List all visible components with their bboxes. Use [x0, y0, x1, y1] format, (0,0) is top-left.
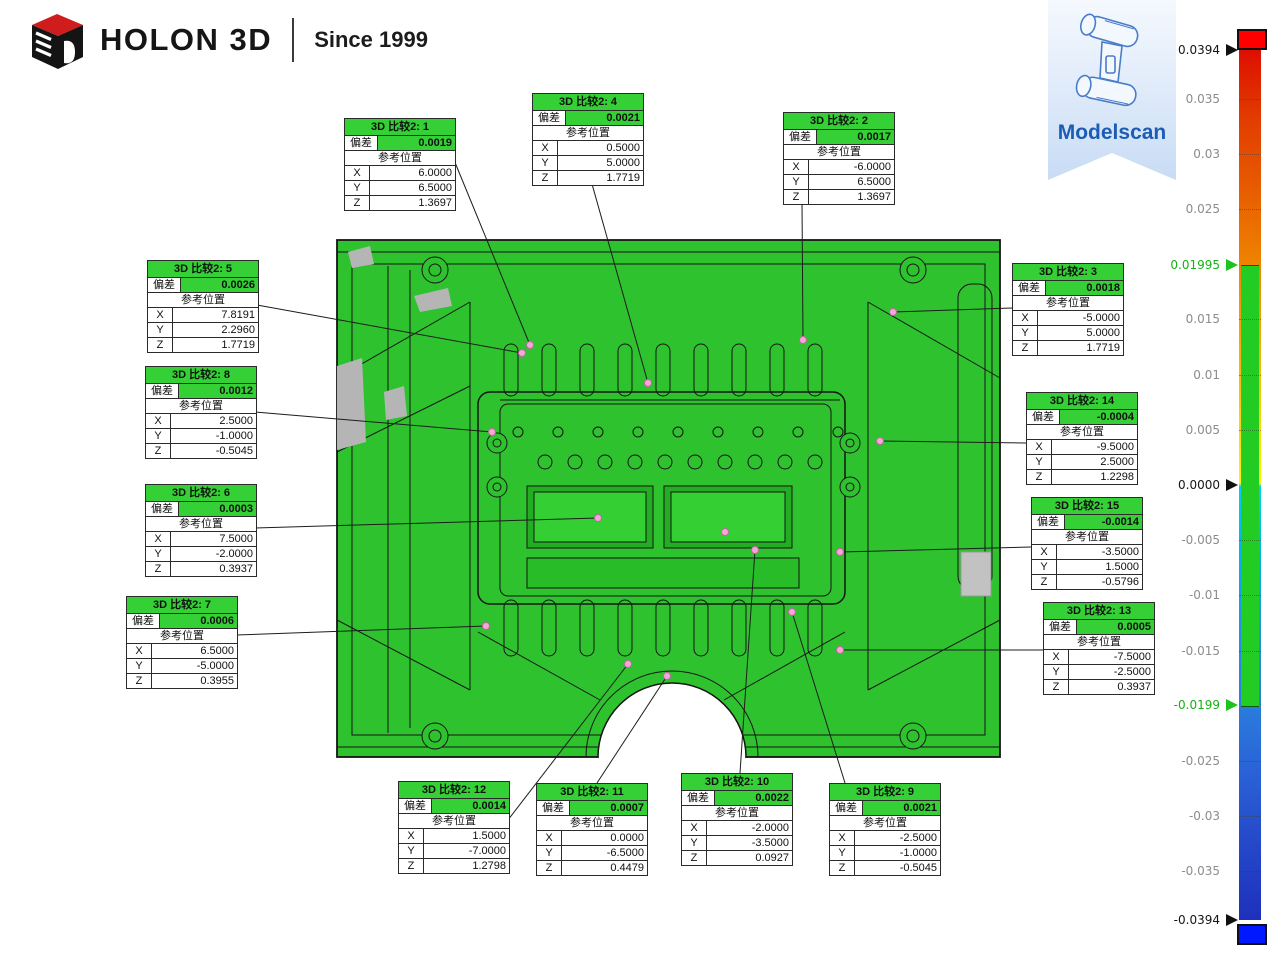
x-label: X — [682, 821, 707, 835]
x-label: X — [1013, 311, 1038, 325]
y-label: Y — [127, 659, 152, 673]
x-value: -7.5000 — [1069, 650, 1154, 664]
annotation-title: 3D 比较2: 15 — [1032, 498, 1142, 515]
deviation-value: 0.0021 — [566, 111, 643, 125]
y-value: 6.5000 — [370, 181, 455, 195]
z-label: Z — [1013, 341, 1038, 355]
z-value: 0.3937 — [1069, 680, 1154, 694]
annotation-card-9[interactable]: 3D 比较2: 9 偏差 0.0021 参考位置 X -2.5000 Y -1.… — [829, 783, 941, 876]
z-value: 1.7719 — [1038, 341, 1123, 355]
z-label: Z — [533, 171, 558, 185]
z-value: 1.3697 — [809, 190, 894, 204]
annotation-card-10[interactable]: 3D 比较2: 10 偏差 0.0022 参考位置 X -2.0000 Y -3… — [681, 773, 793, 866]
reference-position-label: 参考位置 — [146, 517, 256, 532]
y-label: Y — [148, 323, 173, 337]
z-label: Z — [1027, 470, 1052, 484]
annotation-title: 3D 比较2: 7 — [127, 597, 237, 614]
reference-position-label: 参考位置 — [146, 399, 256, 414]
x-label: X — [533, 141, 558, 155]
deviation-label: 偏差 — [146, 502, 179, 516]
y-value: 2.2960 — [173, 323, 258, 337]
z-value: 0.0927 — [707, 851, 792, 865]
z-value: 0.3955 — [152, 674, 237, 688]
x-value: 2.5000 — [171, 414, 256, 428]
deviation-label: 偏差 — [1013, 281, 1046, 295]
y-label: Y — [345, 181, 370, 195]
y-label: Y — [682, 836, 707, 850]
z-value: 1.7719 — [173, 338, 258, 352]
y-label: Y — [399, 844, 424, 858]
x-value: -6.0000 — [809, 160, 894, 174]
x-label: X — [127, 644, 152, 658]
reference-position-label: 参考位置 — [784, 145, 894, 160]
z-label: Z — [1044, 680, 1069, 694]
unscanned-patch — [384, 386, 407, 420]
z-label: Z — [1032, 575, 1057, 589]
z-value: -0.5045 — [171, 444, 256, 458]
deviation-value: 0.0017 — [817, 130, 894, 144]
since-text: Since 1999 — [314, 27, 428, 53]
z-label: Z — [146, 444, 171, 458]
x-value: -9.5000 — [1052, 440, 1137, 454]
reference-position-label: 参考位置 — [148, 293, 258, 308]
x-label: X — [146, 414, 171, 428]
annotation-title: 3D 比较2: 14 — [1027, 393, 1137, 410]
y-value: 2.5000 — [1052, 455, 1137, 469]
deviation-label: 偏差 — [146, 384, 179, 398]
deviation-value: 0.0018 — [1046, 281, 1123, 295]
deviation-label: 偏差 — [127, 614, 160, 628]
x-label: X — [148, 308, 173, 322]
annotation-card-7[interactable]: 3D 比较2: 7 偏差 0.0006 参考位置 X 6.5000 Y -5.0… — [126, 596, 238, 689]
annotation-card-5[interactable]: 3D 比较2: 5 偏差 0.0026 参考位置 X 7.8191 Y 2.29… — [147, 260, 259, 353]
deviation-value: -0.0014 — [1065, 515, 1142, 529]
z-label: Z — [345, 196, 370, 210]
deviation-value: 0.0014 — [432, 799, 509, 813]
y-value: 1.5000 — [1057, 560, 1142, 574]
annotation-title: 3D 比较2: 13 — [1044, 603, 1154, 620]
reference-position-label: 参考位置 — [345, 151, 455, 166]
reference-position-label: 参考位置 — [682, 806, 792, 821]
reference-position-label: 参考位置 — [127, 629, 237, 644]
y-label: Y — [784, 175, 809, 189]
y-label: Y — [533, 156, 558, 170]
annotation-card-14[interactable]: 3D 比较2: 14 偏差 -0.0004 参考位置 X -9.5000 Y 2… — [1026, 392, 1138, 485]
annotation-title: 3D 比较2: 1 — [345, 119, 455, 136]
deviation-value: 0.0019 — [378, 136, 455, 150]
unscanned-patch — [961, 552, 991, 596]
x-value: 7.5000 — [171, 532, 256, 546]
z-label: Z — [682, 851, 707, 865]
x-value: -2.0000 — [707, 821, 792, 835]
y-value: 5.0000 — [558, 156, 643, 170]
z-label: Z — [537, 861, 562, 875]
z-value: 1.7719 — [558, 171, 643, 185]
x-label: X — [830, 831, 855, 845]
annotation-title: 3D 比较2: 2 — [784, 113, 894, 130]
scanned-mold-plate — [337, 240, 1000, 761]
deviation-value: 0.0006 — [160, 614, 237, 628]
deviation-value: 0.0012 — [179, 384, 256, 398]
x-label: X — [399, 829, 424, 843]
annotation-title: 3D 比较2: 4 — [533, 94, 643, 111]
annotation-title: 3D 比较2: 6 — [146, 485, 256, 502]
y-value: -1.0000 — [171, 429, 256, 443]
y-value: -7.0000 — [424, 844, 509, 858]
z-label: Z — [830, 861, 855, 875]
annotation-card-15[interactable]: 3D 比较2: 15 偏差 -0.0014 参考位置 X -3.5000 Y 1… — [1031, 497, 1143, 590]
z-value: 0.3937 — [171, 562, 256, 576]
annotation-title: 3D 比较2: 8 — [146, 367, 256, 384]
reference-position-label: 参考位置 — [830, 816, 940, 831]
annotation-card-1[interactable]: 3D 比较2: 1 偏差 0.0019 参考位置 X 6.0000 Y 6.50… — [344, 118, 456, 211]
x-value: 7.8191 — [173, 308, 258, 322]
deviation-label: 偏差 — [1027, 410, 1060, 424]
y-value: -3.5000 — [707, 836, 792, 850]
deviation-label: 偏差 — [784, 130, 817, 144]
annotation-title: 3D 比较2: 10 — [682, 774, 792, 791]
deviation-value: 0.0005 — [1077, 620, 1154, 634]
z-label: Z — [148, 338, 173, 352]
annotation-title: 3D 比较2: 12 — [399, 782, 509, 799]
y-label: Y — [146, 547, 171, 561]
y-label: Y — [1027, 455, 1052, 469]
y-label: Y — [1032, 560, 1057, 574]
annotation-title: 3D 比较2: 5 — [148, 261, 258, 278]
deviation-value: 0.0007 — [570, 801, 647, 815]
reference-position-label: 参考位置 — [1027, 425, 1137, 440]
unscanned-patch — [337, 358, 366, 450]
z-value: -0.5045 — [855, 861, 940, 875]
x-label: X — [146, 532, 171, 546]
z-label: Z — [146, 562, 171, 576]
z-label: Z — [784, 190, 809, 204]
annotation-card-3[interactable]: 3D 比较2: 3 偏差 0.0018 参考位置 X -5.0000 Y 5.0… — [1012, 263, 1124, 356]
reference-position-label: 参考位置 — [537, 816, 647, 831]
x-label: X — [784, 160, 809, 174]
x-label: X — [537, 831, 562, 845]
reference-position-label: 参考位置 — [1013, 296, 1123, 311]
deviation-value: 0.0022 — [715, 791, 792, 805]
deviation-value: 0.0021 — [863, 801, 940, 815]
y-value: 6.5000 — [809, 175, 894, 189]
reference-position-label: 参考位置 — [399, 814, 509, 829]
annotation-card-8[interactable]: 3D 比较2: 8 偏差 0.0012 参考位置 X 2.5000 Y -1.0… — [145, 366, 257, 459]
y-value: 5.0000 — [1038, 326, 1123, 340]
brand-name: HOLON 3D — [100, 22, 272, 58]
z-value: 0.4479 — [562, 861, 647, 875]
z-value: 1.3697 — [370, 196, 455, 210]
y-label: Y — [537, 846, 562, 860]
deviation-label: 偏差 — [830, 801, 863, 815]
annotation-title: 3D 比较2: 9 — [830, 784, 940, 801]
y-value: -5.0000 — [152, 659, 237, 673]
deviation-value: 0.0026 — [181, 278, 258, 292]
x-value: 0.0000 — [562, 831, 647, 845]
deviation-value: -0.0004 — [1060, 410, 1137, 424]
annotation-card-12[interactable]: 3D 比较2: 12 偏差 0.0014 参考位置 X 1.5000 Y -7.… — [398, 781, 510, 874]
reference-position-label: 参考位置 — [1044, 635, 1154, 650]
annotation-card-11[interactable]: 3D 比较2: 11 偏差 0.0007 参考位置 X 0.0000 Y -6.… — [536, 783, 648, 876]
y-label: Y — [146, 429, 171, 443]
x-value: 6.5000 — [152, 644, 237, 658]
y-value: -1.0000 — [855, 846, 940, 860]
z-label: Z — [399, 859, 424, 873]
x-label: X — [1032, 545, 1057, 559]
annotation-card-13[interactable]: 3D 比较2: 13 偏差 0.0005 参考位置 X -7.5000 Y -2… — [1043, 602, 1155, 695]
x-value: 0.5000 — [558, 141, 643, 155]
logo-divider — [292, 18, 294, 62]
y-label: Y — [1044, 665, 1069, 679]
reference-position-label: 参考位置 — [1032, 530, 1142, 545]
reference-position-label: 参考位置 — [533, 126, 643, 141]
z-value: -0.5796 — [1057, 575, 1142, 589]
y-label: Y — [1013, 326, 1038, 340]
x-label: X — [1044, 650, 1069, 664]
annotation-card-4[interactable]: 3D 比较2: 4 偏差 0.0021 参考位置 X 0.5000 Y 5.00… — [532, 93, 644, 186]
x-label: X — [345, 166, 370, 180]
deviation-label: 偏差 — [148, 278, 181, 292]
deviation-label: 偏差 — [399, 799, 432, 813]
deviation-label: 偏差 — [1032, 515, 1065, 529]
scanner-device-icon — [1072, 10, 1152, 119]
annotation-title: 3D 比较2: 3 — [1013, 264, 1123, 281]
header: HOLON 3D Since 1999 — [26, 8, 428, 72]
y-value: -2.5000 — [1069, 665, 1154, 679]
modelscan-badge: Modelscan — [1048, 0, 1176, 180]
x-value: -2.5000 — [855, 831, 940, 845]
x-value: 1.5000 — [424, 829, 509, 843]
y-value: -2.0000 — [171, 547, 256, 561]
annotation-card-2[interactable]: 3D 比较2: 2 偏差 0.0017 参考位置 X -6.0000 Y 6.5… — [783, 112, 895, 205]
x-label: X — [1027, 440, 1052, 454]
z-value: 1.2298 — [1052, 470, 1137, 484]
deviation-label: 偏差 — [345, 136, 378, 150]
deviation-label: 偏差 — [533, 111, 566, 125]
annotation-card-6[interactable]: 3D 比较2: 6 偏差 0.0003 参考位置 X 7.5000 Y -2.0… — [145, 484, 257, 577]
x-value: -5.0000 — [1038, 311, 1123, 325]
deviation-label: 偏差 — [682, 791, 715, 805]
x-value: -3.5000 — [1057, 545, 1142, 559]
z-value: 1.2798 — [424, 859, 509, 873]
deviation-label: 偏差 — [537, 801, 570, 815]
annotation-title: 3D 比较2: 11 — [537, 784, 647, 801]
badge-label: Modelscan — [1058, 121, 1167, 145]
deviation-value: 0.0003 — [179, 502, 256, 516]
deviation-label: 偏差 — [1044, 620, 1077, 634]
x-value: 6.0000 — [370, 166, 455, 180]
z-label: Z — [127, 674, 152, 688]
y-label: Y — [830, 846, 855, 860]
holon-cube-logo-icon — [26, 8, 88, 72]
y-value: -6.5000 — [562, 846, 647, 860]
